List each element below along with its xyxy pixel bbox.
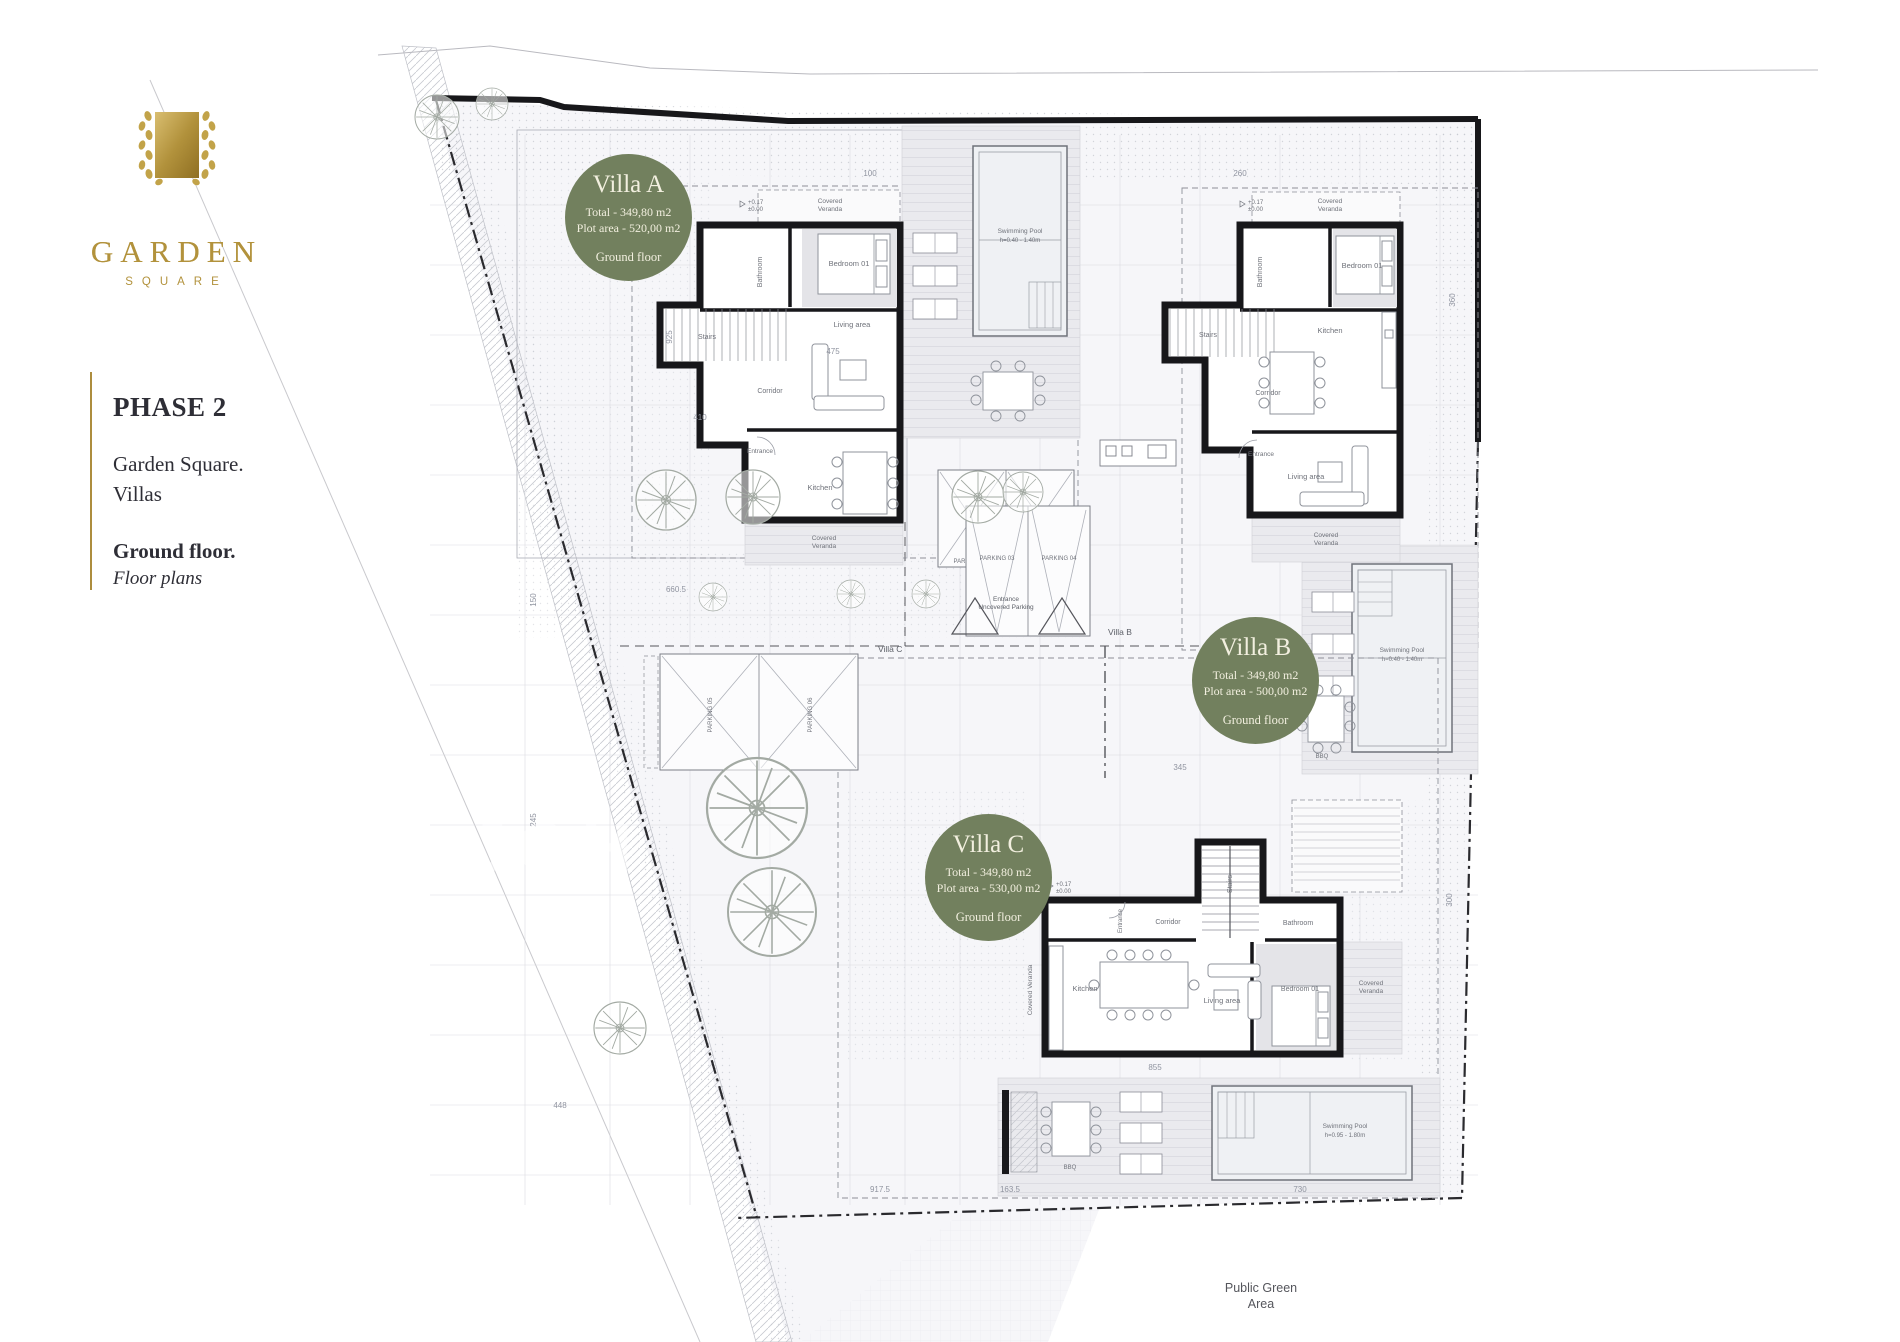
villa-c-badge-title: Villa C [925,831,1052,859]
pool-c-depth: h=0.95 - 1.80m [1325,1133,1366,1139]
villa-b-plot-area: Plot area - 500,00 m2 [1192,683,1319,699]
floor-plan-sheet: Swimming Pool h=0.40 - 1.40m [0,0,1900,1342]
tree-icon [636,470,696,530]
room-label: Living area [834,320,872,329]
tree-icon [1003,472,1043,512]
sheet-title-block: PHASE 2 Garden Square. Villas Ground flo… [113,392,343,590]
villa-b-badge-title: Villa B [1192,634,1319,662]
room-label: Kitchen [807,483,832,492]
entrance-label: Uncovered Parking [978,604,1034,611]
gold-rule [90,372,92,590]
dim-label: 345 [1173,763,1187,772]
level-value: ±0.00 [1056,889,1072,895]
room-label: Bathroom [1283,920,1314,927]
villa-a-floor: Ground floor [565,250,692,265]
villa-a-pool: Swimming Pool h=0.40 - 1.40m [973,146,1067,336]
room-label: Stairs [698,334,716,341]
entrance-label: Entrance [993,596,1019,603]
tree-icon [728,868,816,956]
room-label: Living area [1204,996,1242,1005]
pool-b-label: Swimming Pool [1380,647,1425,654]
villa-a-badge-title: Villa A [565,171,692,199]
pool-a-label: Swimming Pool [998,228,1043,235]
villa-a-badge: Villa A Total - 349,80 m2 Plot area - 52… [565,154,692,281]
villa-a-total: Total - 349,80 m2 [565,204,692,220]
room-label: Covered [818,198,843,205]
bbq-label-c: BBQ [1064,1165,1077,1171]
project-name-line1: Garden Square. [113,449,343,479]
pool-c-label: Swimming Pool [1323,1123,1368,1130]
dim-label: 925 [665,330,674,344]
tree-icon [707,758,807,858]
parking-03-label: PARKING 03 [980,556,1016,562]
level-value: ±0.00 [1248,207,1264,213]
tree-icon [415,95,459,139]
room-label: Corridor [1255,390,1281,397]
room-label: Veranda [1359,988,1384,995]
tree-icon [699,583,727,611]
tree-icon [476,88,508,120]
pool-a-depth: h=0.40 - 1.40m [1000,238,1041,244]
tree-icon [837,580,865,608]
public-green-label: Public Green Area [1225,1281,1297,1311]
room-label: Kitchen [1072,984,1097,993]
villa-c-parking: PARKING 05 PARKING 06 [644,654,858,770]
room-label: Veranda [1318,206,1343,213]
room-label: Bedroom 01 [1342,261,1383,270]
room-label: Covered [1314,532,1339,539]
room-label: Bathroom [757,257,764,288]
watermark-text: JOH [468,809,642,887]
public-green-line: Public Green [1225,1281,1297,1295]
level-value: +0.17 [1248,200,1264,206]
tree-icon [912,580,940,608]
room-label: Entrance [747,448,773,455]
room-label: Bathroom [1257,257,1264,288]
dim-label: 448 [553,1101,567,1110]
room-label: Entrance [1248,451,1274,458]
site-plan-drawing: Swimming Pool h=0.40 - 1.40m [0,0,1900,1342]
villa-b-floor: Ground floor [1192,713,1319,728]
room-label: Living area [1288,472,1326,481]
tree-icon [594,1002,646,1054]
villa-c-plot-area: Plot area - 530,00 m2 [925,880,1052,896]
project-name-line2: Villas [113,479,343,509]
dim-label: 475 [826,347,840,356]
villa-a-plot-area: Plot area - 520,00 m2 [565,220,692,236]
villa-c-loungers [1120,1092,1162,1174]
room-label: Stairs [1199,332,1217,339]
room-label: Stairs [1227,875,1234,893]
room-label: Bedroom 01 [829,259,870,268]
villa-c-floor: Ground floor [925,910,1052,925]
room-label: Covered [1318,198,1343,205]
villa-a-loungers [913,233,957,319]
dim-label: 360 [1448,293,1457,307]
brand-subname: SQUARE [84,276,269,288]
villa-c-tag: Villa C [878,644,902,654]
brand-logo: GARDEN SQUARE [84,110,269,288]
top-edge-line [378,46,1818,74]
brand-name: GARDEN [84,234,269,270]
dim-label: 917.5 [870,1185,891,1194]
garden-square-logo-icon [112,110,242,226]
phase-title: PHASE 2 [113,392,343,423]
dim-label: 300 [1445,893,1454,907]
room-label: Corridor [757,388,783,395]
floor-subtitle: Floor plans [113,568,343,590]
level-value: ±0.00 [748,207,764,213]
dim-label: 855 [1148,1063,1162,1072]
dim-label: 660.5 [666,585,687,594]
villa-b-badge: Villa B Total - 349,80 m2 Plot area - 50… [1192,617,1319,744]
public-green-line: Area [1248,1297,1274,1311]
bbq-label-b: BBQ [1316,754,1329,760]
level-value: +0.17 [748,200,764,206]
dim-label: 260 [1233,169,1247,178]
room-label: Bedroom 01 [1281,986,1319,993]
level-value: +0.17 [1056,882,1072,888]
room-label: Entrance [1118,908,1124,933]
dim-label: 163.5 [1000,1185,1021,1194]
villa-c-badge: Villa C Total - 349,80 m2 Plot area - 53… [925,814,1052,941]
tree-icon [726,470,780,524]
room-label: Covered [1359,980,1384,987]
room-label: Covered [812,535,837,542]
room-label: Veranda [812,543,837,550]
tree-icon [952,471,1004,523]
room-label: Corridor [1155,919,1181,926]
villa-c-outdoor-stairs [1292,800,1402,892]
room-label: Kitchen [1317,326,1342,335]
villa-b-parking: PARKING 03 PARKING 04 [966,506,1090,636]
dim-label: 730 [1293,1185,1307,1194]
outdoor-bar [1100,440,1176,466]
villa-b-tag: Villa B [1108,627,1132,637]
floor-title: Ground floor. [113,539,343,564]
room-label: Veranda [1314,540,1339,547]
parking-05-label: PARKING 05 [708,697,714,733]
dim-label: 150 [529,593,538,607]
villa-c-pool: Swimming Pool h=0.95 - 1.80m [1212,1086,1412,1180]
villa-c-total: Total - 349,80 m2 [925,864,1052,880]
parking-04-label: PARKING 04 [1042,556,1078,562]
dim-label: 410 [693,413,707,422]
villa-b-total: Total - 349,80 m2 [1192,667,1319,683]
room-label: Covered Veranda [1027,964,1034,1015]
dim-label: 100 [863,169,877,178]
room-label: Veranda [818,206,843,213]
parking-06-label: PARKING 06 [808,697,814,733]
